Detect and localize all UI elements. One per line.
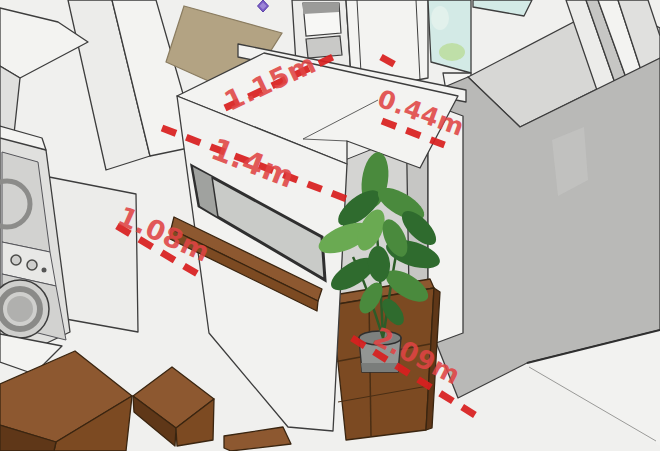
3d-interior-viewport[interactable]: 1.15m 1.4m 0.44m 1.08m 2.09m — [0, 0, 660, 451]
washer-knob-icon — [27, 260, 37, 270]
scene-render — [0, 0, 660, 451]
washer-knob-icon — [11, 255, 21, 265]
guide-point-marker-icon — [258, 0, 269, 12]
washer-dryer-stack — [0, 126, 70, 374]
